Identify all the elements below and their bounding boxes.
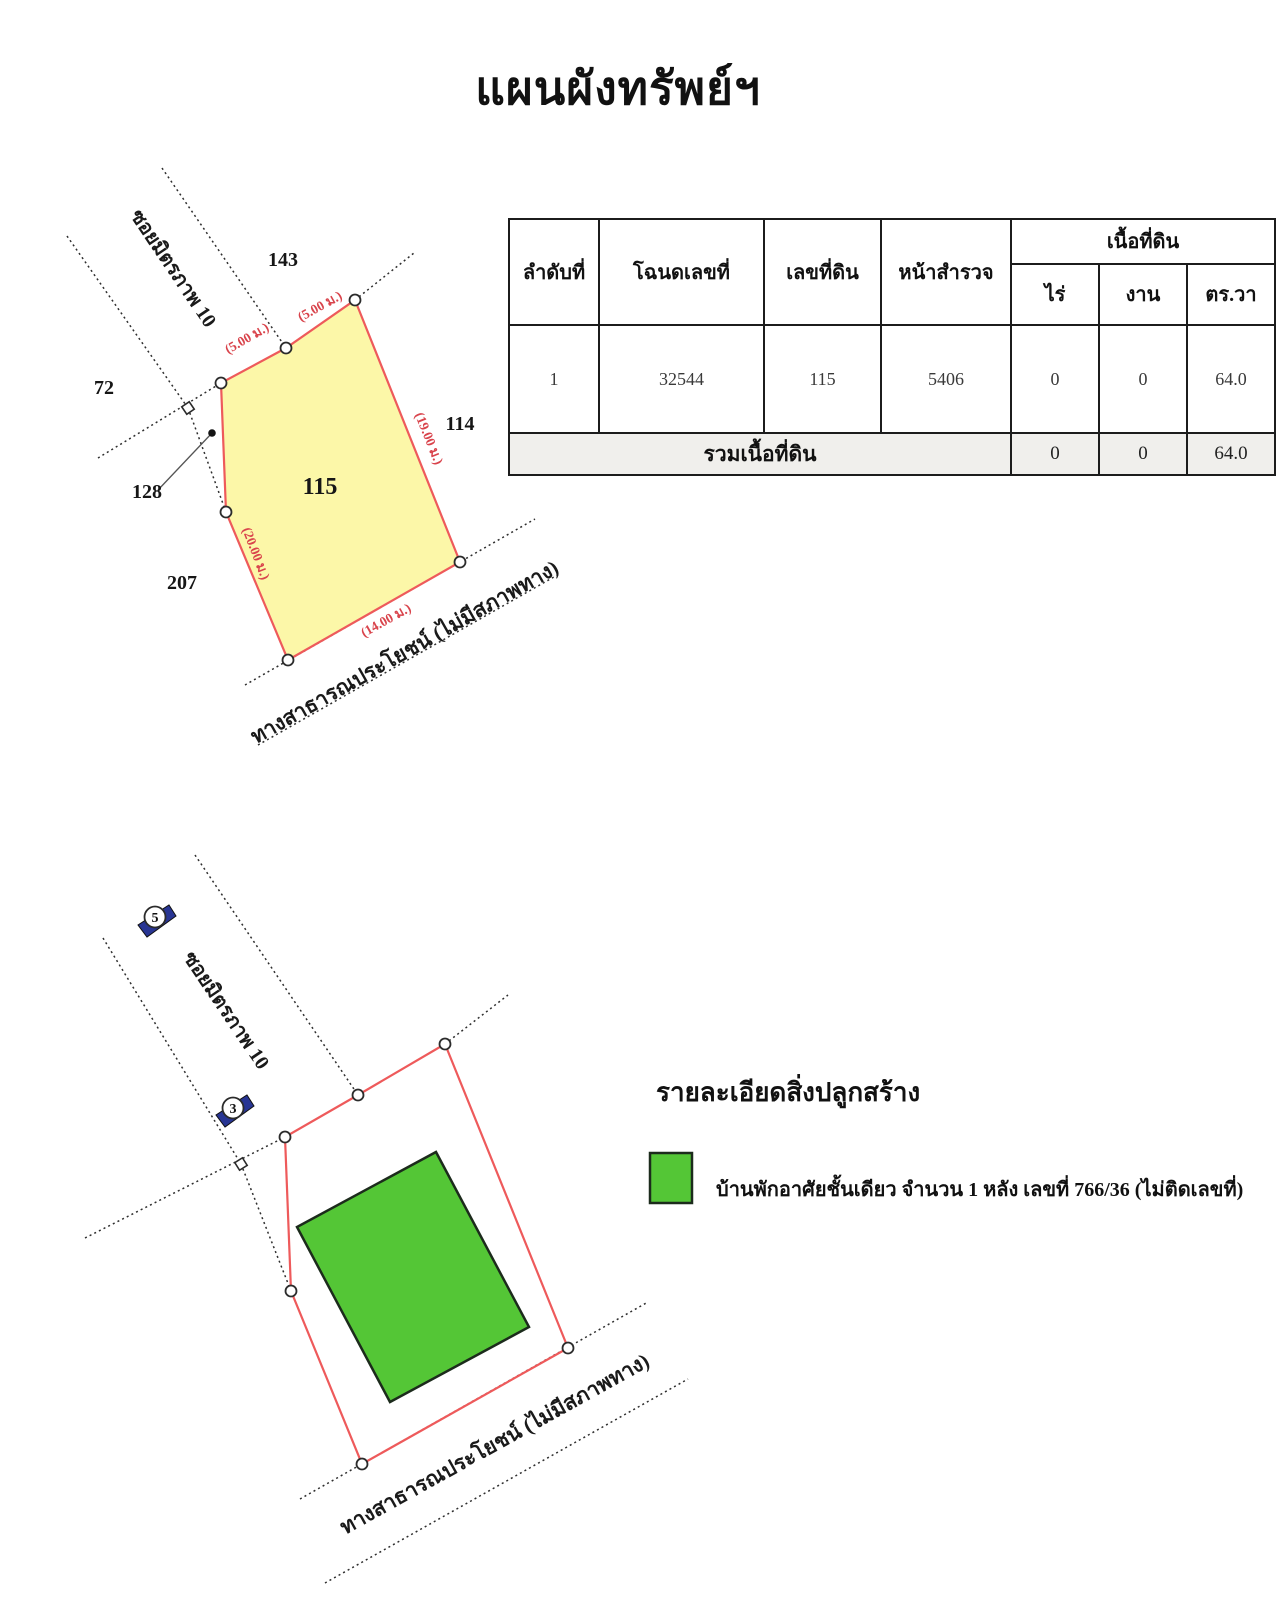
leader-line-128 xyxy=(158,433,212,490)
parcel-115-polygon xyxy=(221,300,460,660)
col-header-wah: ตร.วา xyxy=(1187,264,1275,325)
table-total-row: รวมเนื้อที่ดิน 0 0 64.0 xyxy=(509,433,1275,475)
building-plan-diagram: 5 3 ซอยมิตรภาพ 10 ทางสาธารณประโยชน์ (ไม่… xyxy=(0,840,720,1619)
cross-road-line xyxy=(85,1137,285,1238)
building-footprint xyxy=(297,1152,529,1402)
neighbor-parcel-72: 72 xyxy=(94,377,114,399)
neighbor-parcel-114: 114 xyxy=(446,413,475,435)
boundary-extension-line xyxy=(445,995,508,1044)
neighbor-parcel-128: 128 xyxy=(132,481,162,503)
neighbor-parcel-207: 207 xyxy=(167,572,197,594)
boundary-vertex xyxy=(455,557,466,568)
boundary-vertex xyxy=(283,655,294,666)
total-ngan: 0 xyxy=(1099,433,1187,475)
survey-point-dot xyxy=(208,429,216,437)
col-header-survey: หน้าสำรวจ xyxy=(881,219,1011,325)
col-header-deed: โฉนดเลขที่ xyxy=(599,219,764,325)
col-header-area: เนื้อที่ดิน xyxy=(1011,219,1275,264)
soi-road-line-left xyxy=(103,938,241,1164)
soi-name-label: ซอยมิตรภาพ 10 xyxy=(126,206,221,332)
soi-road-continuation-line xyxy=(188,408,226,512)
marker-number: 5 xyxy=(152,911,159,926)
cell-no: 1 xyxy=(509,325,599,433)
boundary-vertex xyxy=(357,1459,368,1470)
cross-road-line xyxy=(98,383,221,458)
boundary-vertex xyxy=(216,378,227,389)
total-rai: 0 xyxy=(1011,433,1099,475)
land-plan-diagram: 143 72 128 207 114 115 (5.00 ม.) (5.00 ม… xyxy=(0,140,560,800)
road-intersection-marker xyxy=(182,402,194,414)
cell-survey: 5406 xyxy=(881,325,1011,433)
legend-swatch xyxy=(648,1151,694,1205)
legend-title: รายละเอียดสิ่งปลูกสร้าง xyxy=(656,1072,1248,1113)
boundary-vertex xyxy=(353,1090,364,1101)
marker-number: 3 xyxy=(230,1102,237,1117)
land-area-table: ลำดับที่ โฉนดเลขที่ เลขที่ดิน หน้าสำรวจ … xyxy=(508,218,1276,476)
boundary-vertex xyxy=(350,295,361,306)
building-color-swatch xyxy=(650,1153,692,1203)
photo-marker-3: 3 xyxy=(216,1095,254,1127)
soi-road-continuation-line xyxy=(241,1164,291,1291)
page-title: แผนผังทรัพย์ฯ xyxy=(0,52,1236,125)
road-intersection-marker xyxy=(235,1158,247,1170)
table-row: 1 32544 115 5406 0 0 64.0 xyxy=(509,325,1275,433)
cell-rai: 0 xyxy=(1011,325,1099,433)
soi-road-line-right xyxy=(195,855,358,1095)
boundary-vertex xyxy=(286,1286,297,1297)
boundary-vertex xyxy=(281,343,292,354)
boundary-vertex xyxy=(221,507,232,518)
cell-deed: 32544 xyxy=(599,325,764,433)
col-header-land-no: เลขที่ดิน xyxy=(764,219,881,325)
boundary-vertex xyxy=(280,1132,291,1143)
legend-item: บ้านพักอาศัยชั้นเดียว จำนวน 1 หลัง เลขที… xyxy=(648,1151,1248,1205)
parcel-number-115: 115 xyxy=(303,474,338,500)
cell-ngan: 0 xyxy=(1099,325,1187,433)
photo-marker-5: 5 xyxy=(138,905,176,937)
total-wah: 64.0 xyxy=(1187,433,1275,475)
cell-land-no: 115 xyxy=(764,325,881,433)
boundary-vertex xyxy=(440,1039,451,1050)
neighbor-parcel-143: 143 xyxy=(268,249,298,271)
public-way-line-lower xyxy=(325,1379,688,1583)
legend-item-text: บ้านพักอาศัยชั้นเดียว จำนวน 1 หลัง เลขที… xyxy=(716,1173,1243,1205)
col-header-rai: ไร่ xyxy=(1011,264,1099,325)
col-header-no: ลำดับที่ xyxy=(509,219,599,325)
boundary-vertex xyxy=(563,1343,574,1354)
building-legend: รายละเอียดสิ่งปลูกสร้าง บ้านพักอาศัยชั้น… xyxy=(648,1072,1248,1205)
property-plan-page: แผนผังทรัพย์ฯ 143 72 128 207 114 115 (5.… xyxy=(0,0,1280,1619)
dimension-label-top-left: (5.00 ม.) xyxy=(222,320,271,357)
col-header-ngan: งาน xyxy=(1099,264,1187,325)
cell-wah: 64.0 xyxy=(1187,325,1275,433)
boundary-extension-line xyxy=(355,253,414,300)
soi-name-label: ซอยมิตรภาพ 10 xyxy=(179,948,274,1074)
total-label: รวมเนื้อที่ดิน xyxy=(509,433,1011,475)
